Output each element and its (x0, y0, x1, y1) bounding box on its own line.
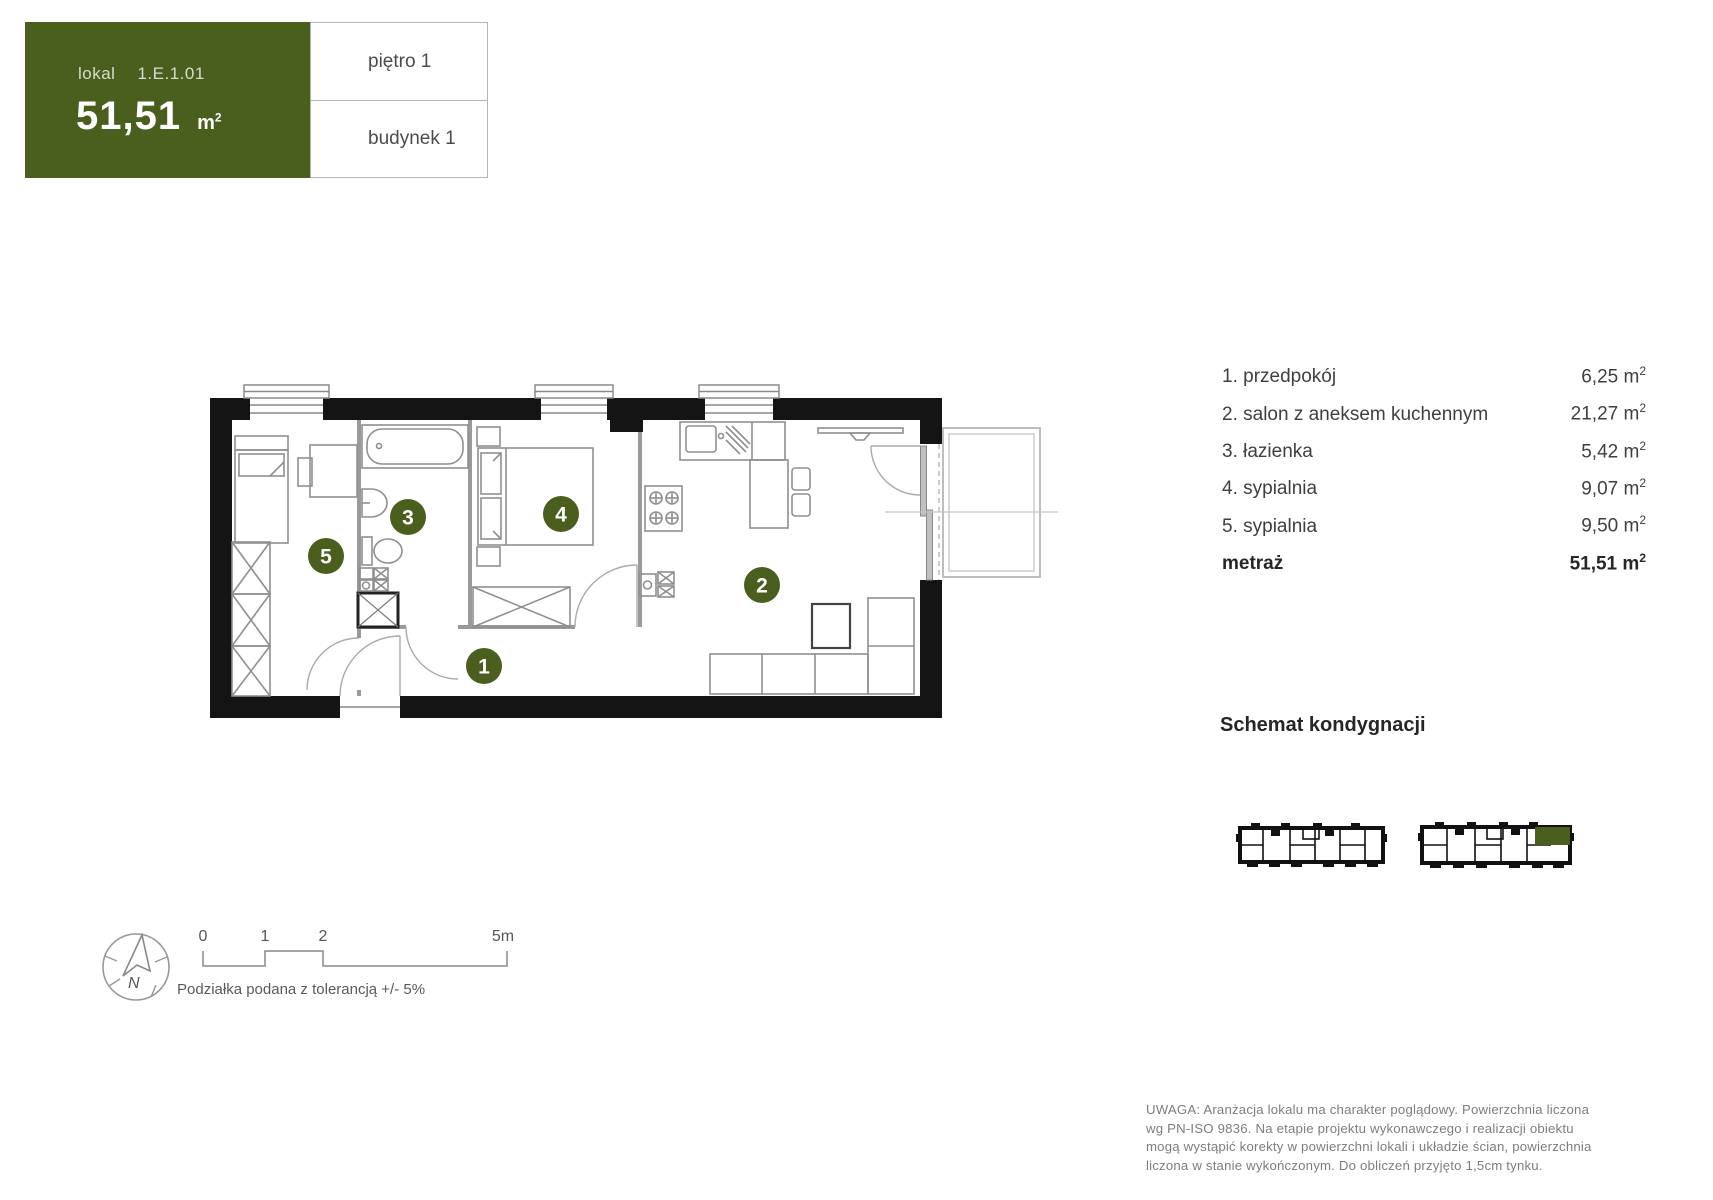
floor-label: piętro 1 (368, 51, 431, 73)
shaft (358, 593, 398, 627)
svg-text:N: N (128, 975, 140, 992)
building-schematic-right (1417, 815, 1575, 874)
svg-text:3: 3 (402, 507, 414, 530)
balcony (885, 428, 1058, 577)
room-marker-4: 4 (543, 496, 579, 532)
scale-tolerance-note: Podziałka podana z tolerancją +/- 5% (177, 981, 425, 998)
wall-openings (250, 398, 942, 718)
room-marker-2: 2 (744, 567, 780, 603)
svg-text:2: 2 (319, 928, 328, 945)
legend-row: 2. salon z aneksem kuchennym 21,27 m2 (1222, 401, 1646, 425)
building-label: budynek 1 (368, 128, 456, 150)
room-marker-1: 1 (466, 648, 502, 684)
svg-text:5: 5 (320, 546, 332, 569)
unit-area-line: 51,51m2 (76, 94, 222, 139)
unit-area-value: 51,51 (76, 94, 181, 138)
building-cell: budynek 1 (310, 100, 488, 178)
floorplan-page: lokal1.E.1.01 51,51m2 piętro 1 budynek 1 (0, 0, 1713, 1200)
svg-text:4: 4 (555, 504, 567, 527)
floor-cell: piętro 1 (310, 22, 488, 101)
highlighted-unit (1535, 827, 1570, 845)
unit-id-line: lokal1.E.1.01 (78, 64, 205, 84)
legend-row: 1. przedpokój 6,25 m2 (1222, 364, 1646, 388)
unit-area-card: lokal1.E.1.01 51,51m2 (25, 22, 310, 178)
legend-row: 3. łazienka 5,42 m2 (1222, 439, 1646, 463)
svg-text:0: 0 (199, 928, 208, 945)
lokal-id: 1.E.1.01 (137, 64, 204, 83)
disclaimer-text: UWAGA: Aranżacja lokalu ma charakter pog… (1146, 1101, 1592, 1176)
room-legend: 1. przedpokój 6,25 m2 2. salon z aneksem… (1222, 364, 1646, 588)
svg-text:2: 2 (756, 575, 768, 598)
unit-area-unit: m2 (197, 112, 221, 134)
kitchen-fixtures (639, 422, 810, 597)
compass-icon: N (97, 928, 175, 1006)
svg-text:1: 1 (261, 928, 270, 945)
livingroom-furniture (710, 428, 914, 694)
legend-row: 5. sypialnia 9,50 m2 (1222, 513, 1646, 537)
legend-row: 4. sypialnia 9,07 m2 (1222, 476, 1646, 500)
building-schematic-left (1235, 818, 1388, 872)
bedroom4-furniture (473, 427, 593, 627)
svg-text:1: 1 (478, 656, 490, 679)
svg-text:5m: 5m (492, 928, 514, 945)
room-marker-5: 5 (308, 538, 344, 574)
room-marker-3: 3 (390, 499, 426, 535)
scale-bar: 0 1 2 5m (190, 924, 530, 974)
legend-total-row: metraż 51,51 m2 (1222, 551, 1646, 575)
schemat-title: Schemat kondygnacji (1220, 714, 1426, 737)
floorplan-drawing: 1 2 3 4 5 (210, 382, 1060, 718)
lokal-label: lokal (78, 64, 115, 83)
